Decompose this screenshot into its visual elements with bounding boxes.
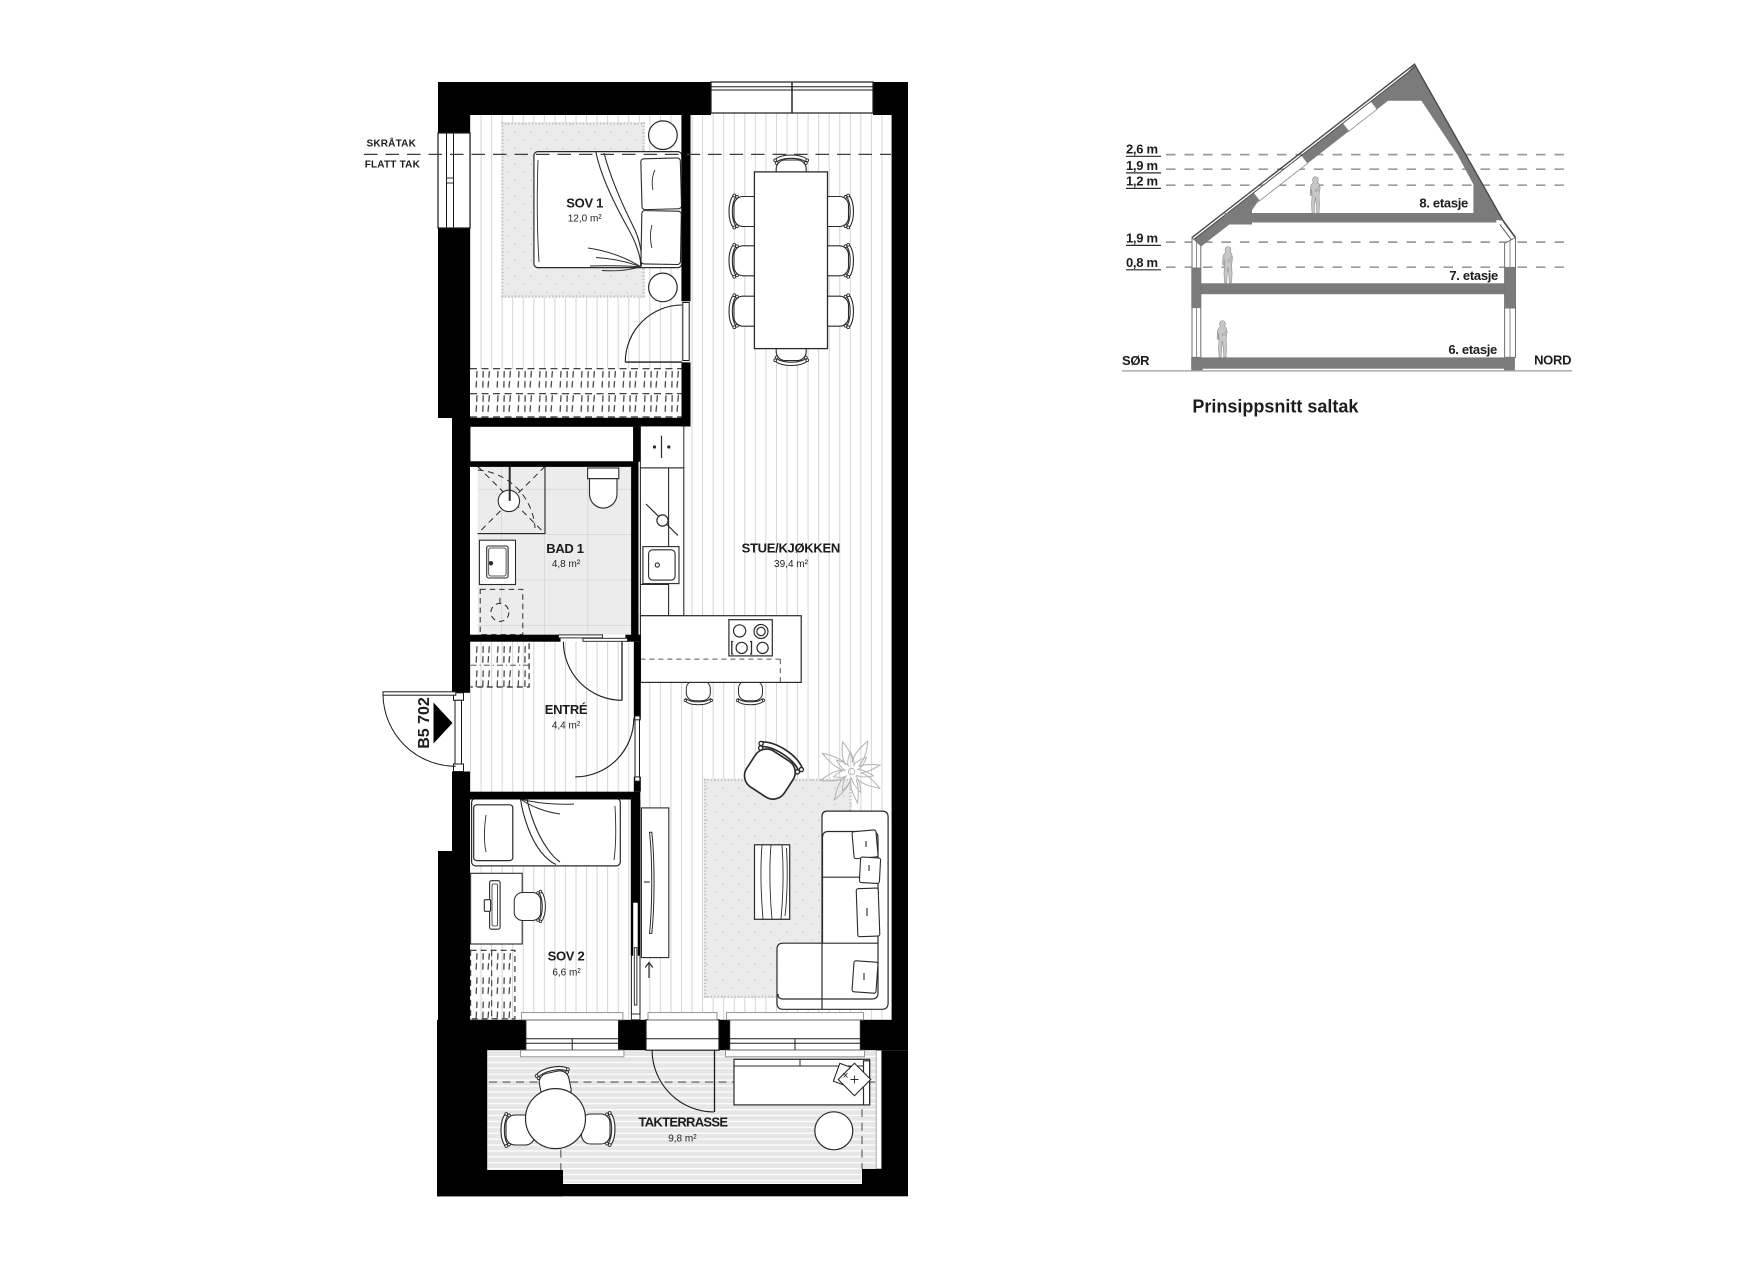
svg-text:6. etasje: 6. etasje — [1448, 342, 1497, 357]
svg-text:SØR: SØR — [1122, 353, 1150, 368]
svg-text:NORD: NORD — [1534, 352, 1571, 367]
svg-text:0,8 m: 0,8 m — [1126, 255, 1158, 270]
svg-text:8. etasje: 8. etasje — [1419, 196, 1468, 211]
svg-text:12,0 m²: 12,0 m² — [568, 214, 603, 225]
svg-text:1,9 m: 1,9 m — [1126, 231, 1158, 246]
svg-text:STUE/KJØKKEN: STUE/KJØKKEN — [742, 541, 840, 556]
svg-text:4,8 m²: 4,8 m² — [552, 559, 581, 570]
svg-text:6,6 m²: 6,6 m² — [552, 968, 581, 979]
svg-text:7. etasje: 7. etasje — [1449, 268, 1498, 283]
svg-text:SOV 2: SOV 2 — [548, 949, 585, 964]
svg-text:FLATT TAK: FLATT TAK — [365, 160, 421, 171]
svg-text:9,8 m²: 9,8 m² — [668, 1134, 697, 1145]
svg-text:SOV 1: SOV 1 — [566, 196, 603, 211]
svg-text:BAD 1: BAD 1 — [546, 541, 584, 556]
svg-text:SKRÅTAK: SKRÅTAK — [366, 137, 416, 150]
svg-text:39,4 m²: 39,4 m² — [774, 559, 809, 570]
svg-text:Prinsippsnitt saltak: Prinsippsnitt saltak — [1192, 397, 1359, 417]
svg-text:TAKTERRASSE: TAKTERRASSE — [638, 1115, 728, 1130]
svg-text:1,9 m: 1,9 m — [1126, 158, 1158, 173]
svg-text:4,4 m²: 4,4 m² — [552, 721, 581, 732]
svg-text:2,6 m: 2,6 m — [1126, 141, 1158, 156]
svg-text:1,2 m: 1,2 m — [1126, 174, 1158, 189]
svg-text:B5 702: B5 702 — [416, 697, 433, 749]
svg-text:ENTRÉ: ENTRÉ — [545, 702, 588, 717]
